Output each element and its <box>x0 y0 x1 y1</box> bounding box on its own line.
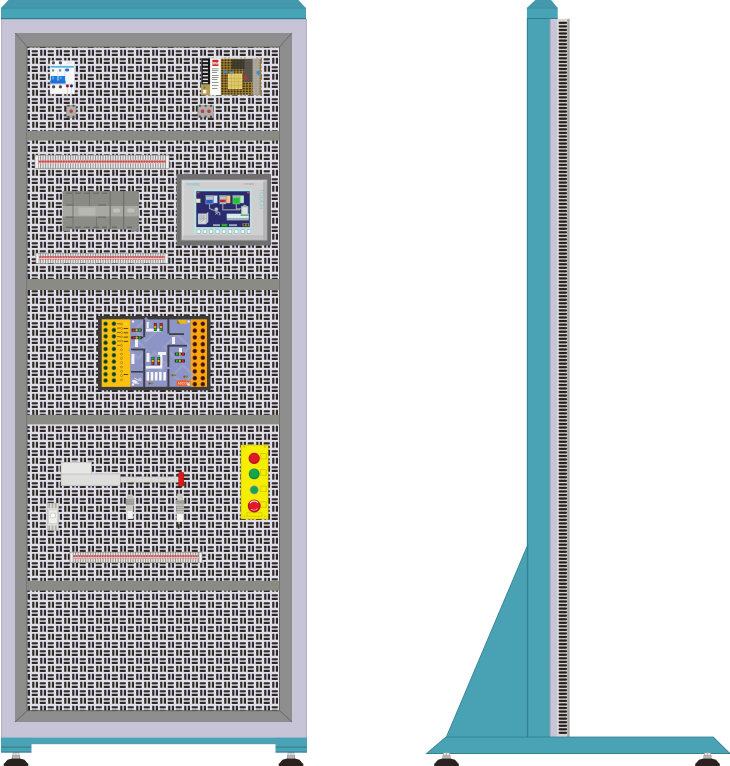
svg-text:MW: MW <box>213 62 220 66</box>
svg-text:SIEMENS: SIEMENS <box>186 183 200 187</box>
svg-text:TOUCH: TOUCH <box>257 189 263 209</box>
svg-text:KTP1000: KTP1000 <box>244 183 255 186</box>
